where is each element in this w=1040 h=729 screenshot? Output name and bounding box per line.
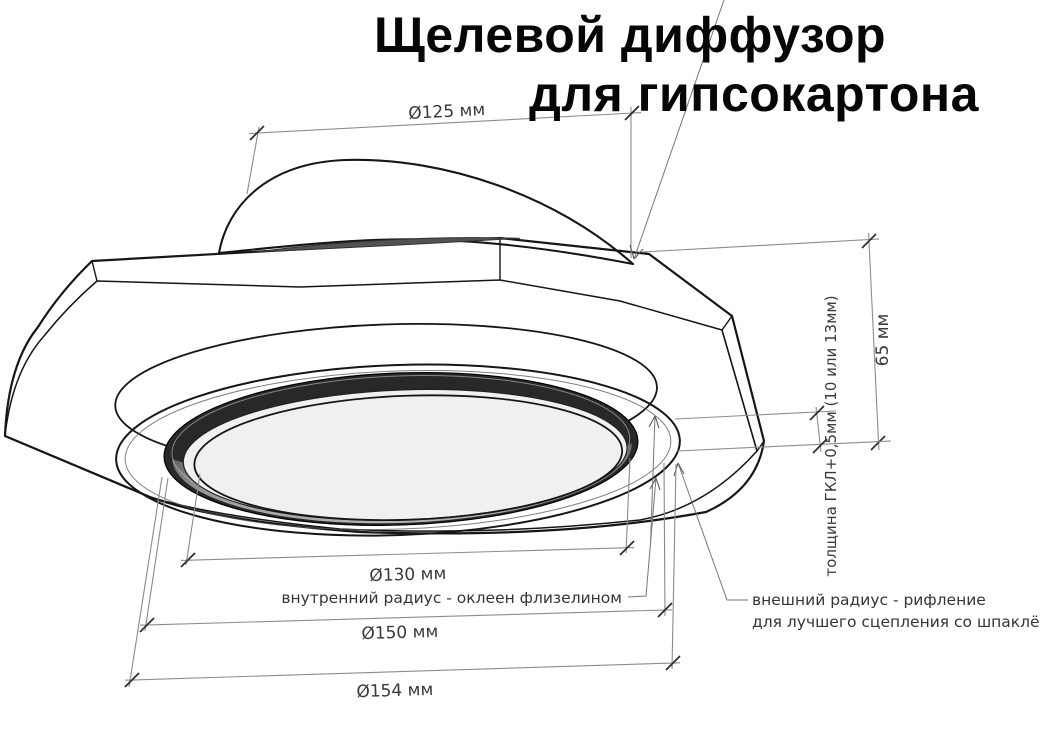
plate-right-facet <box>722 316 764 451</box>
diffuser-drawing: Ø125 мм 65 мм толщина ГКЛ+0,5мм (10 или … <box>0 0 1040 729</box>
technical-drawing-page: Ø125 мм 65 мм толщина ГКЛ+0,5мм (10 или … <box>0 0 1040 729</box>
leader-line <box>678 463 748 600</box>
dim-slot-inner-diameter-label: Ø130 мм <box>369 564 446 586</box>
extension-line <box>626 458 630 553</box>
extension-line <box>642 239 879 252</box>
extension-line <box>664 463 665 616</box>
extension-line <box>672 464 676 669</box>
note-outer-radius-group: внешний радиус - рифление для лучшего сц… <box>674 463 1040 631</box>
plate-corner-seam-left <box>92 261 97 281</box>
page-title-line2: для гипсокартона <box>529 66 979 122</box>
dimension-drywall-thickness: толщина ГКЛ+0,5мм (10 или 13мм) <box>675 295 891 576</box>
dim-flange-outer-diameter-label: Ø154 мм <box>356 680 433 702</box>
page-title-line1: Щелевой диффузор <box>374 7 886 63</box>
dim-rim-diameter-label: Ø150 мм <box>361 622 438 644</box>
dim-duct-diameter-label: Ø125 мм <box>408 100 486 124</box>
dimension-duct-diameter: Ø125 мм <box>247 100 641 258</box>
dimension-line <box>125 663 680 680</box>
dimension-line <box>677 441 891 451</box>
dimension-height: 65 мм <box>642 233 893 450</box>
extension-line <box>129 477 162 687</box>
dim-drywall-thickness-label: толщина ГКЛ+0,5мм (10 или 13мм) <box>822 295 840 576</box>
note-outer-radius-line2: для лучшего сцепления со шпаклёвкой <box>752 613 1040 631</box>
diffuser-ring-assembly <box>112 314 683 545</box>
note-outer-radius-line1: внешний радиус - рифление <box>752 591 986 609</box>
note-inner-radius: внутренний радиус - оклеен флизелином <box>281 589 622 607</box>
dim-height-label: 65 мм <box>873 314 893 367</box>
dimension-line <box>181 548 634 561</box>
